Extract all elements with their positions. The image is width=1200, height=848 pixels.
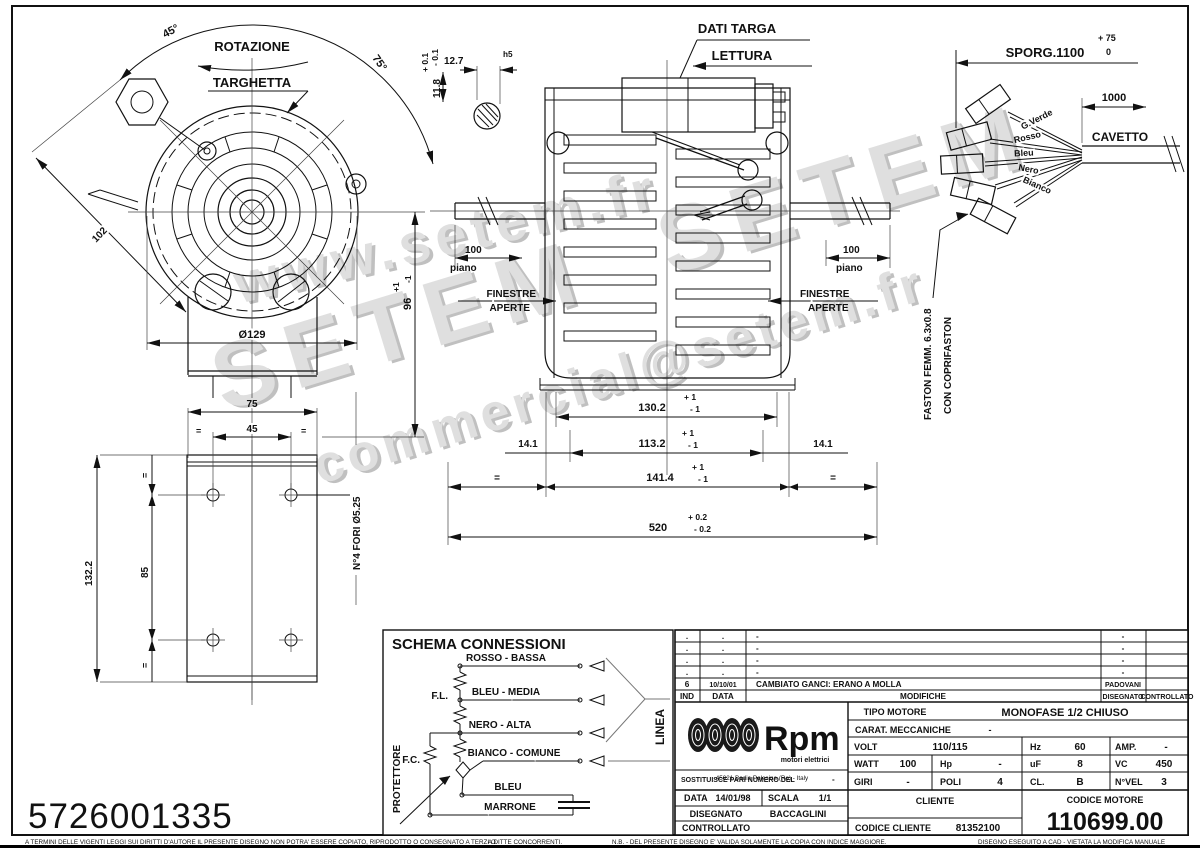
dim-520-tm: - 0.2 — [694, 524, 711, 534]
part-number: 5726001335 — [28, 797, 233, 836]
cliente-label: CLIENTE — [916, 796, 955, 806]
dati-targa-label: DATI TARGA — [698, 21, 777, 36]
rev-dot: . — [686, 632, 688, 641]
rev-dot: . — [686, 668, 688, 677]
plate-view: 75 45 = = 132.2 85 = = N°4 FORI Ø5.25 — [84, 392, 363, 700]
lettura-label: LETTURA — [712, 48, 773, 63]
logo-subtitle: motori elettrici — [781, 757, 830, 764]
dati-targa-annotation: DATI TARGA LETTURA — [680, 21, 812, 78]
tipo-motore-label: TIPO MOTORE — [864, 707, 927, 717]
eq-left: = — [494, 473, 500, 484]
nvel-label: N°VEL — [1115, 777, 1143, 787]
dim-127-label: 12.7 — [444, 56, 464, 67]
rev-dash: - — [756, 668, 759, 677]
dim-45-label: 45 — [246, 424, 258, 435]
footer-strip: A TERMINI DELLE VIGENTI LEGGI SUI DIRITT… — [25, 839, 1165, 846]
schema-w6-label: MARRONE — [484, 802, 536, 813]
rev-dash: - — [756, 632, 759, 641]
sostituisce-value: - — [832, 775, 835, 784]
nvel-value: 3 — [1161, 777, 1167, 788]
rev-header-modifiche: MODIFICHE — [900, 692, 946, 701]
dim-96: 96 +1 -1 — [322, 212, 424, 437]
rev-dash: - — [756, 644, 759, 653]
angle-45-label: 45° — [161, 22, 181, 40]
drawing-sheet: 45° 75° ROTAZIONE TARGHETTA 102 Ø129 — [0, 0, 1200, 848]
eq-85-bottom: = — [140, 663, 150, 668]
dim-141-right-label: 14.1 — [813, 439, 833, 450]
dim-1414-tp: + 1 — [692, 462, 704, 472]
dim-96-label: 96 — [402, 298, 414, 310]
dim-1132-tm: - 1 — [688, 440, 698, 450]
poli-value: 4 — [997, 777, 1003, 788]
giri-value: - — [906, 777, 909, 788]
footer-nb-text: N.B. - DEL PRESENTE DISEGNO E' VALIDA SO… — [612, 839, 887, 846]
dim-118-label: 11.8 — [432, 79, 443, 98]
rev-dash: - — [1122, 668, 1125, 677]
watt-label: WATT — [854, 759, 879, 769]
title-block: . . - - . . - - . . - - . . - - 6 10/10/… — [675, 630, 1194, 836]
footer-left-text: A TERMINI DELLE VIGENTI LEGGI SUI DIRITT… — [25, 839, 496, 846]
rev-note: CAMBIATO GANCI: ERANO A MOLLA — [756, 680, 902, 689]
capacitor-bolt — [116, 79, 366, 194]
eq-45-right: = — [301, 426, 306, 436]
dim-1302-tp: + 1 — [684, 392, 696, 402]
schema-w3-label: NERO - ALTA — [469, 720, 532, 731]
vc-label: VC — [1115, 759, 1128, 769]
rev-author: PADOVANI — [1105, 682, 1141, 689]
finestre-right-2: APERTE — [808, 303, 849, 314]
data-value: 14/01/98 — [715, 793, 750, 803]
rev-dash: - — [1122, 632, 1125, 641]
piano-right-label: piano — [836, 263, 863, 274]
rev-date: 10/10/01 — [709, 682, 736, 689]
cad-canvas: 45° 75° ROTAZIONE TARGHETTA 102 Ø129 — [0, 0, 1200, 848]
dim-96-tol-plus: +1 — [391, 282, 401, 292]
volt-value: 110/115 — [932, 742, 967, 753]
dim-102: 102 — [36, 158, 186, 312]
faston-terminals — [941, 85, 1016, 234]
dim-85-label: 85 — [140, 566, 151, 578]
dim-1132-label: 113.2 — [639, 438, 666, 450]
sporg-tol-plus: + 75 — [1098, 33, 1116, 43]
cl-label: CL. — [1030, 777, 1045, 787]
disegnato-value: BACCAGLINI — [770, 809, 827, 819]
wire-bleu-label: Bleu — [1014, 148, 1034, 159]
scala-label: SCALA — [768, 793, 799, 803]
footer-center-text: A DITTE CONCORRENTI. — [488, 839, 562, 846]
h5-label: h5 — [503, 50, 513, 59]
rev-dot: . — [722, 668, 724, 677]
rev-header-disegnato: DISEGNATO — [1103, 694, 1145, 701]
spring-hooks — [652, 132, 762, 220]
finestre-left-1: FINESTRE — [487, 289, 537, 300]
rotation-label: ROTAZIONE — [214, 39, 290, 54]
rev-header-controllato: CONTROLLATO — [1140, 694, 1194, 701]
cable-view: SPORG.1100 + 75 0 1000 CAVETTO G.Verde — [923, 33, 1184, 420]
wire-nero-label: Nero — [1018, 162, 1041, 176]
terminal-box — [622, 78, 785, 132]
dim-100-left-label: 100 — [465, 245, 482, 256]
uf-value: 8 — [1077, 759, 1083, 770]
targhetta-annotation: TARGHETTA — [208, 75, 308, 113]
footer-cad-text: DISEGNO ESEGUITO A CAD - VIETATA LA MODI… — [978, 839, 1165, 846]
cable-exit — [88, 190, 138, 210]
schema-connessioni: SCHEMA CONNESSIONI — [383, 630, 673, 835]
codice-cliente-value: 81352100 — [956, 823, 1001, 834]
finestre-right: FINESTRE APERTE — [768, 289, 878, 314]
dim-1132-tp: + 1 — [682, 428, 694, 438]
schema-fc-label: F.C. — [402, 755, 420, 766]
side-view: DATI TARGA LETTURA 100 piano 100 piano F… — [430, 21, 900, 545]
dim-96-tol-minus: -1 — [403, 275, 413, 283]
wire-gverde-label: G.Verde — [1019, 107, 1054, 131]
dim-1302-label: 130.2 — [638, 402, 666, 414]
rotation-annotation: ROTAZIONE — [198, 39, 308, 70]
dim-1000-label: 1000 — [1102, 92, 1126, 104]
schema-protettore-label: PROTETTORE — [392, 745, 403, 813]
vc-value: 450 — [1156, 759, 1173, 770]
dim-1414-tm: - 1 — [698, 474, 708, 484]
targhetta-label: TARGHETTA — [213, 75, 292, 90]
sostituisce-label: SOSTITUISCE PARI NUMERO DEL — [681, 777, 796, 784]
poli-label: POLI — [940, 777, 961, 787]
rev-header-ind: IND — [680, 692, 694, 701]
rev-dot: . — [686, 644, 688, 653]
dim-118-tol-plus: + 0.1 — [420, 53, 430, 72]
schema-title: SCHEMA CONNESSIONI — [392, 636, 566, 653]
sporg-label: SPORG.1100 — [1006, 45, 1085, 60]
schema-w5-label: BLEU — [494, 782, 521, 793]
schema-fl-label: F.L. — [431, 691, 448, 702]
codice-cliente-label: CODICE CLIENTE — [855, 823, 931, 833]
rev-dash: - — [1122, 644, 1125, 653]
rev-dot: . — [722, 632, 724, 641]
key-detail: 12.7 h5 11.8 + 0.1 - 0.1 — [420, 49, 517, 129]
dim-100-right-label: 100 — [843, 245, 860, 256]
hz-value: 60 — [1074, 742, 1086, 753]
schema-w4-label: BIANCO - COMUNE — [468, 748, 561, 759]
amp-value: - — [1164, 742, 1167, 753]
hp-label: Hp — [940, 759, 952, 769]
fori-note: N°4 FORI Ø5.25 — [352, 496, 363, 570]
side-foot — [540, 378, 795, 390]
cl-value: B — [1076, 777, 1083, 788]
dim-102-label: 102 — [90, 225, 110, 245]
carat-value: - — [989, 725, 992, 735]
finestre-right-1: FINESTRE — [800, 289, 850, 300]
hp-value: - — [998, 759, 1001, 770]
rev-header-data: DATA — [712, 692, 734, 701]
dim-118-tol-minus: - 0.1 — [430, 49, 440, 66]
wire-rosso-label: Rosso — [1013, 129, 1043, 145]
codice-motore-label: CODICE MOTORE — [1067, 795, 1144, 805]
faston-note-2: CON COPRIFASTON — [943, 317, 954, 414]
schema-w1-label: ROSSO - BASSA — [466, 653, 546, 664]
eq-85-top: = — [140, 473, 150, 478]
hz-label: Hz — [1030, 742, 1041, 752]
watt-value: 100 — [900, 759, 917, 770]
giri-label: GIRI — [854, 777, 873, 787]
volt-label: VOLT — [854, 742, 878, 752]
scala-value: 1/1 — [819, 793, 832, 803]
angle-75-label: 75° — [370, 53, 389, 74]
dim-1414-label: 141.4 — [646, 472, 674, 484]
sporg-tol-zero: 0 — [1106, 47, 1111, 57]
eq-right: = — [830, 473, 836, 484]
dim-75-label: 75 — [246, 399, 258, 410]
codice-motore-value: 110699.00 — [1047, 808, 1164, 836]
front-view: 45° 75° ROTAZIONE TARGHETTA 102 Ø129 — [32, 22, 517, 705]
dim-100-right: 100 piano — [826, 225, 890, 274]
rev-dot: . — [722, 656, 724, 665]
dim-1302-tm: - 1 — [690, 404, 700, 414]
finestre-left-2: APERTE — [489, 303, 530, 314]
rev-dot: . — [686, 656, 688, 665]
dim-100-left: 100 piano — [450, 225, 522, 274]
rev-dash: - — [1122, 656, 1125, 665]
finestre-left: FINESTRE APERTE — [458, 289, 556, 314]
dim-129-label: Ø129 — [239, 329, 266, 341]
controllato-label: CONTROLLATO — [682, 823, 750, 833]
disegnato-label: DISEGNATO — [690, 809, 743, 819]
logo-brand: Rpm — [764, 720, 840, 758]
schema-linea-label: LINEA — [653, 709, 667, 745]
tipo-motore-value: MONOFASE 1/2 CHIUSO — [1001, 707, 1129, 719]
dim-chain: 130.2 + 1 - 1 113.2 + 1 - 1 14.1 14.1 = … — [448, 392, 877, 545]
dim-520-tp: + 0.2 — [688, 512, 707, 522]
rev-dash: - — [756, 656, 759, 665]
dim-141-left-label: 14.1 — [518, 439, 538, 450]
dim-1322-label: 132.2 — [84, 561, 95, 586]
schema-w2-label: BLEU - MEDIA — [472, 687, 540, 698]
faston-note-1: FASTON FEMM. 6.3x0.8 — [923, 308, 934, 420]
rev-index: 6 — [685, 680, 690, 689]
dim-520-label: 520 — [649, 522, 667, 534]
eq-45-left: = — [196, 426, 201, 436]
cavetto-label: CAVETTO — [1092, 130, 1148, 144]
uf-label: uF — [1030, 759, 1041, 769]
carat-label: CARAT. MECCANICHE — [855, 725, 951, 735]
amp-label: AMP. — [1115, 742, 1136, 752]
piano-left-label: piano — [450, 263, 477, 274]
data-label: DATA — [684, 793, 708, 803]
rev-dot: . — [722, 644, 724, 653]
